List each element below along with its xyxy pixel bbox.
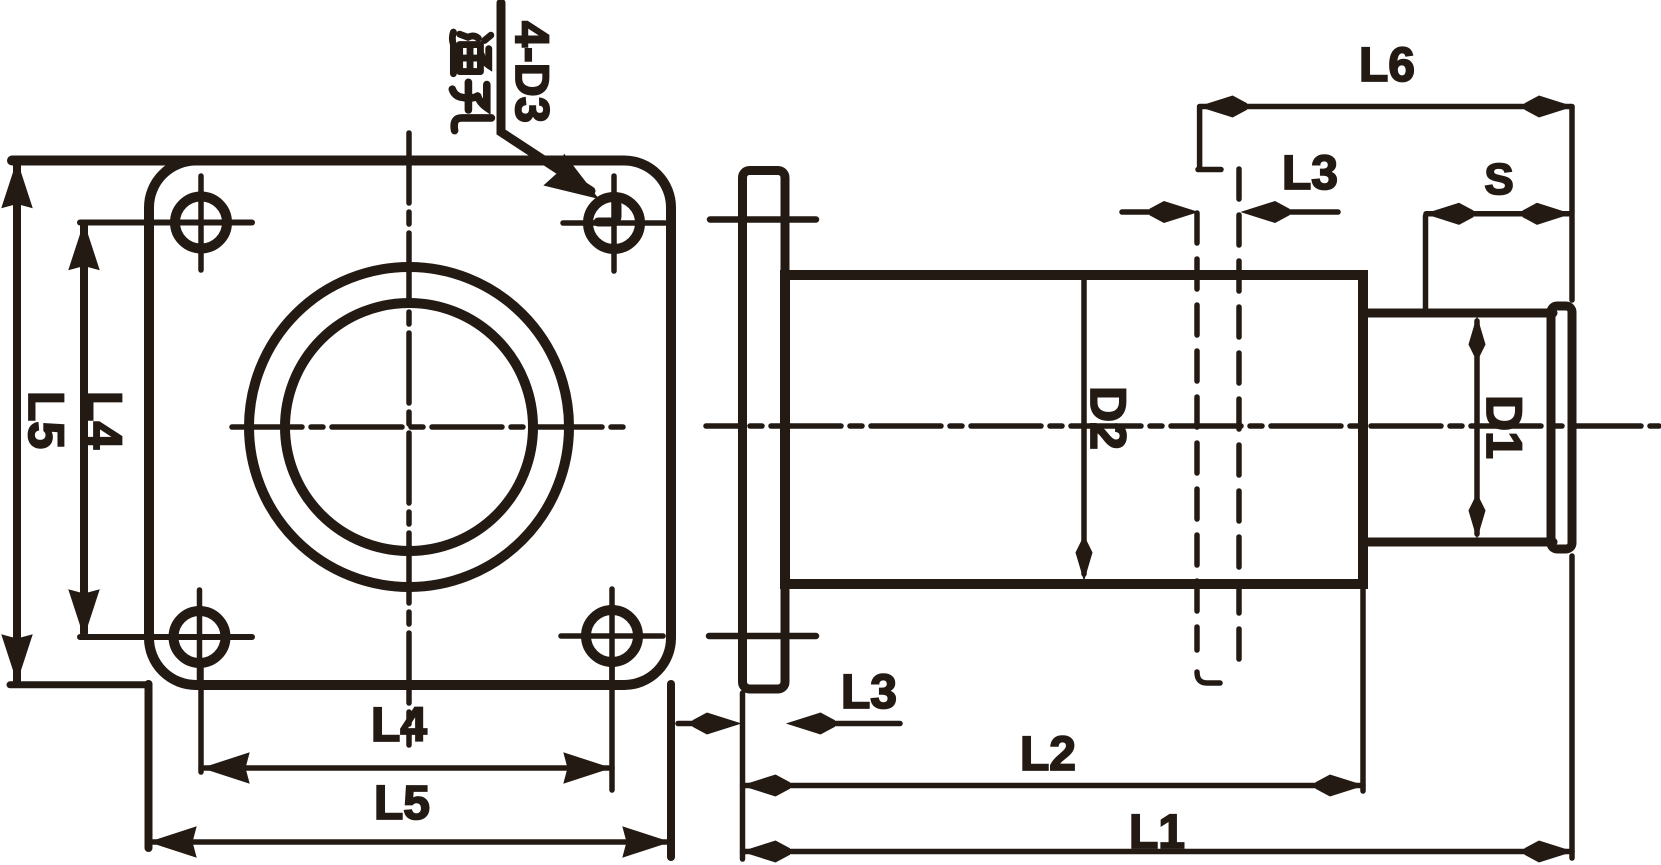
svg-text:D2: D2 bbox=[1080, 386, 1136, 450]
svg-text:4-D3: 4-D3 bbox=[506, 21, 559, 123]
svg-text:L4: L4 bbox=[76, 391, 132, 450]
svg-text:L2: L2 bbox=[1020, 728, 1076, 781]
svg-text:D1: D1 bbox=[1476, 395, 1532, 459]
svg-text:L5: L5 bbox=[18, 391, 74, 449]
svg-text:S: S bbox=[1484, 155, 1513, 204]
svg-text:L6: L6 bbox=[1359, 39, 1415, 92]
svg-text:L4: L4 bbox=[371, 699, 427, 752]
svg-text:L5: L5 bbox=[374, 777, 430, 830]
svg-text:L1: L1 bbox=[1129, 806, 1185, 859]
svg-text:L3: L3 bbox=[1282, 147, 1338, 200]
svg-text:L3: L3 bbox=[841, 666, 897, 719]
